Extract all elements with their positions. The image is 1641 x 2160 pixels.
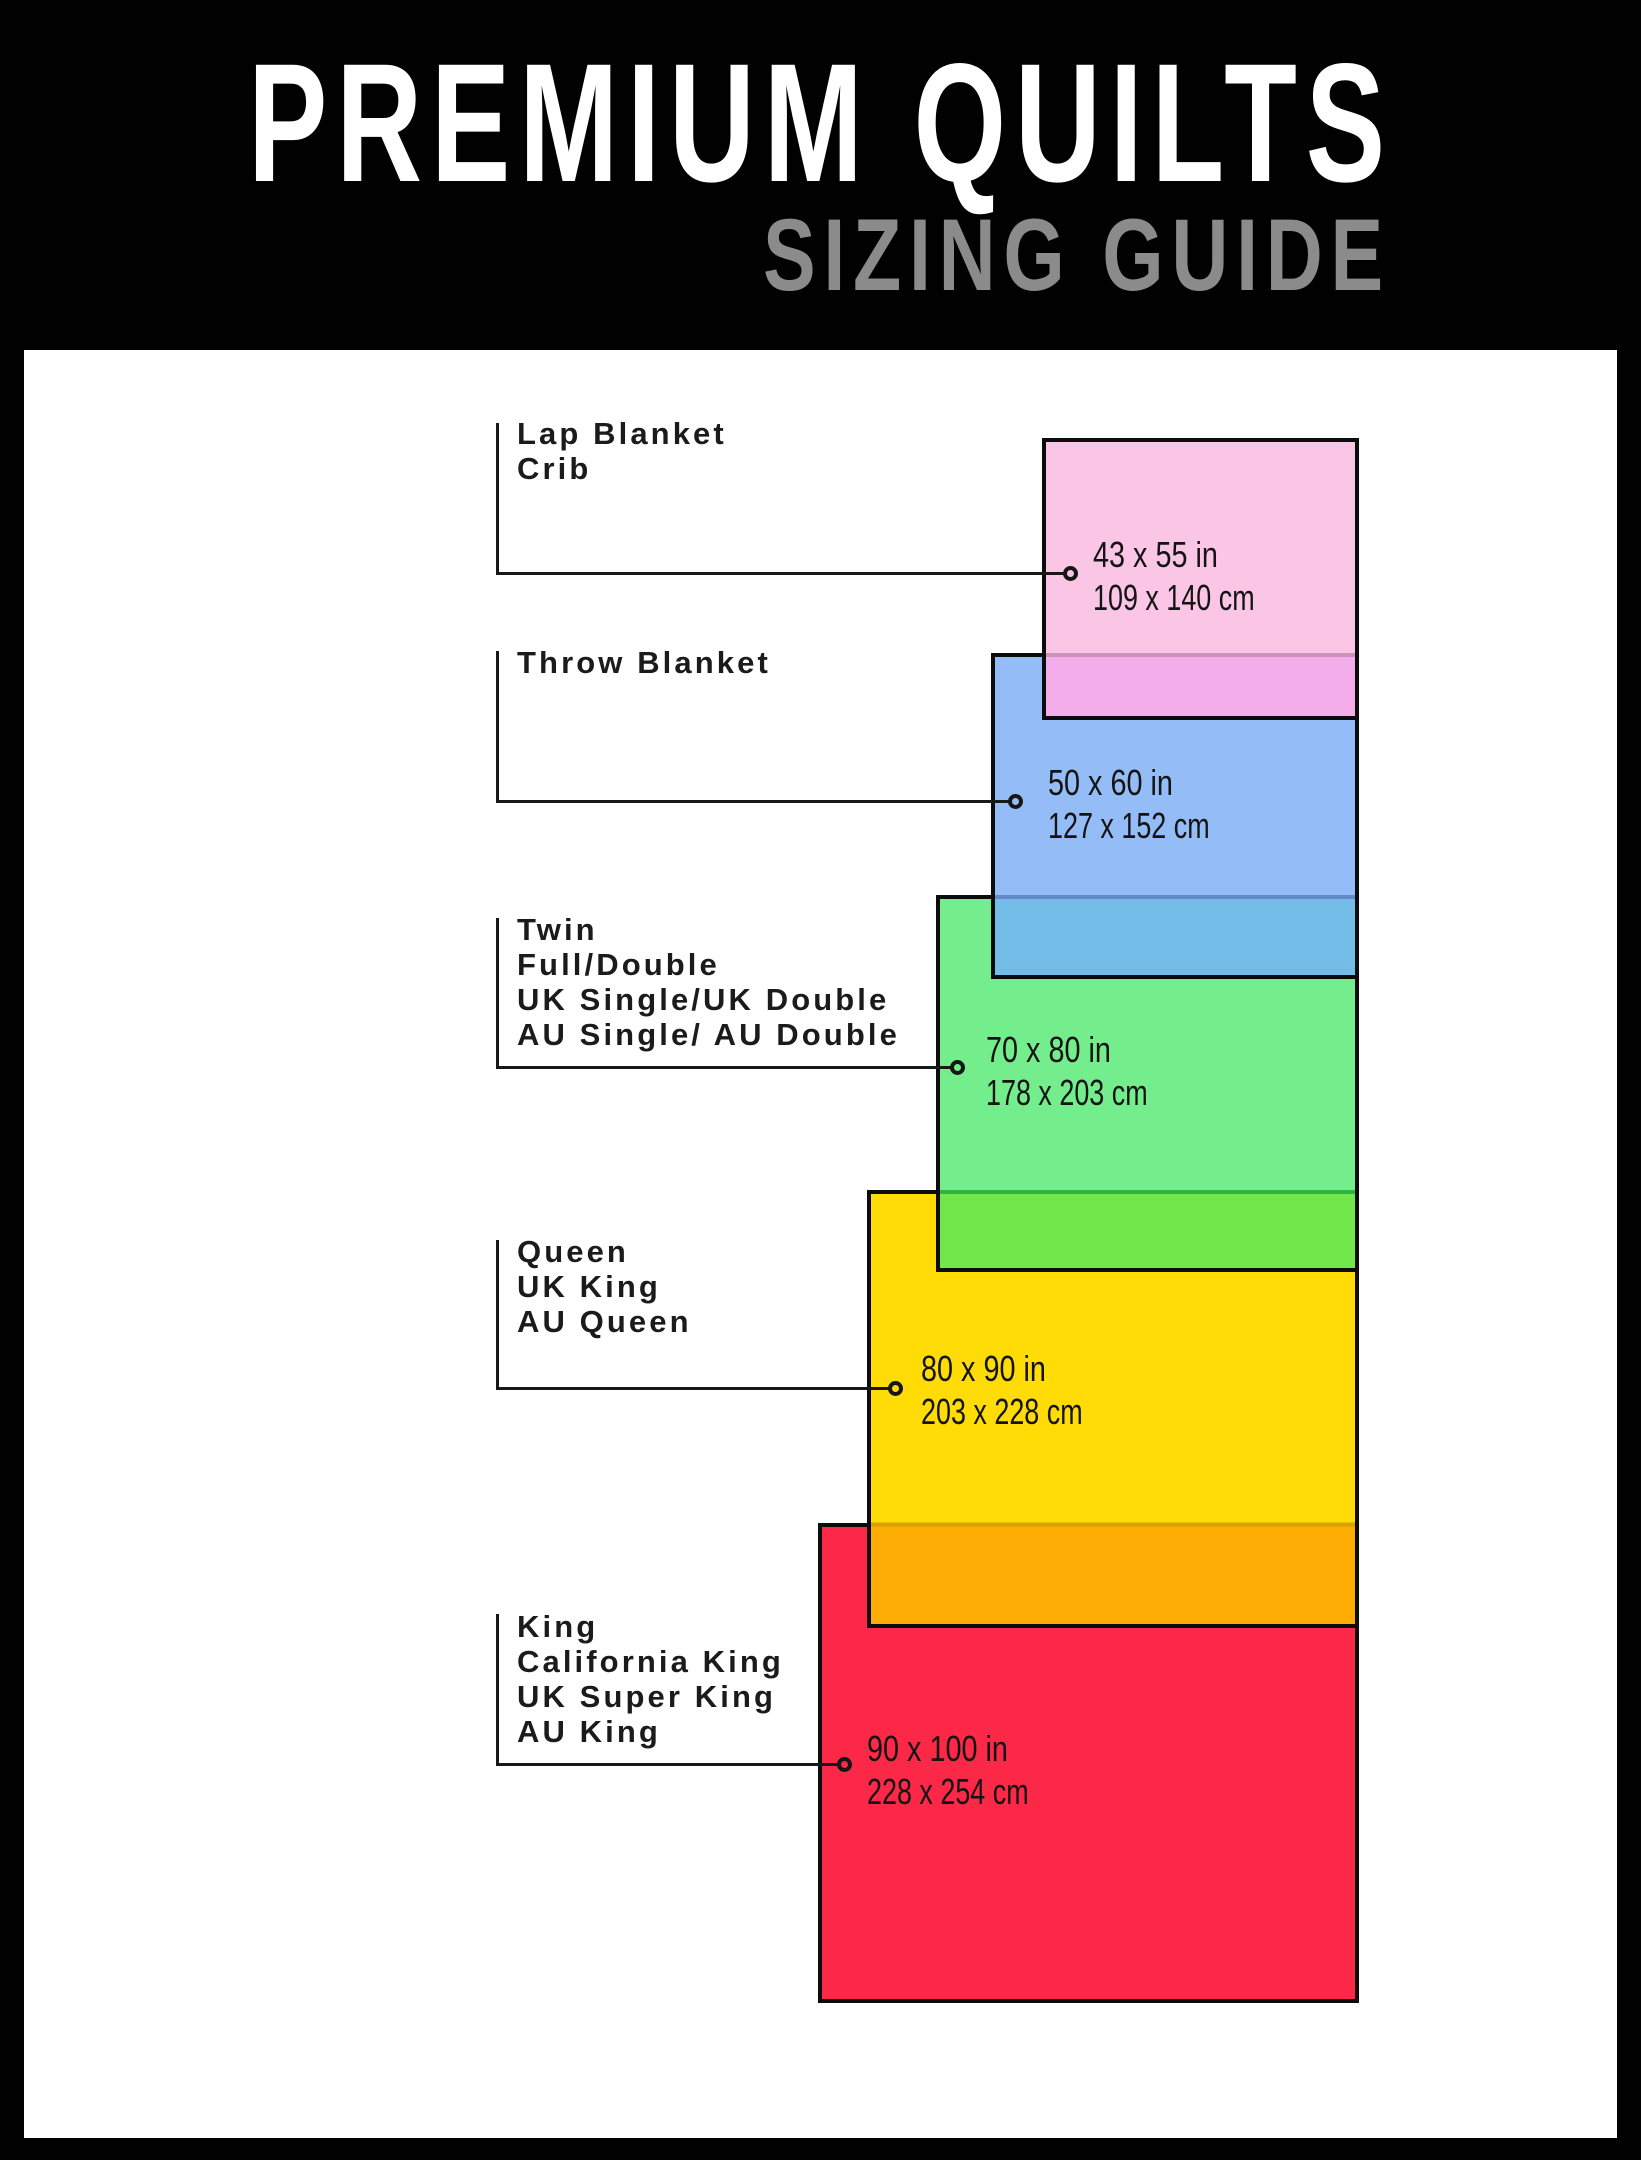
svg-text:SIZING GUIDE: SIZING GUIDE xyxy=(763,198,1391,312)
svg-text:PREMIUM QUILTS: PREMIUM QUILTS xyxy=(248,28,1394,216)
